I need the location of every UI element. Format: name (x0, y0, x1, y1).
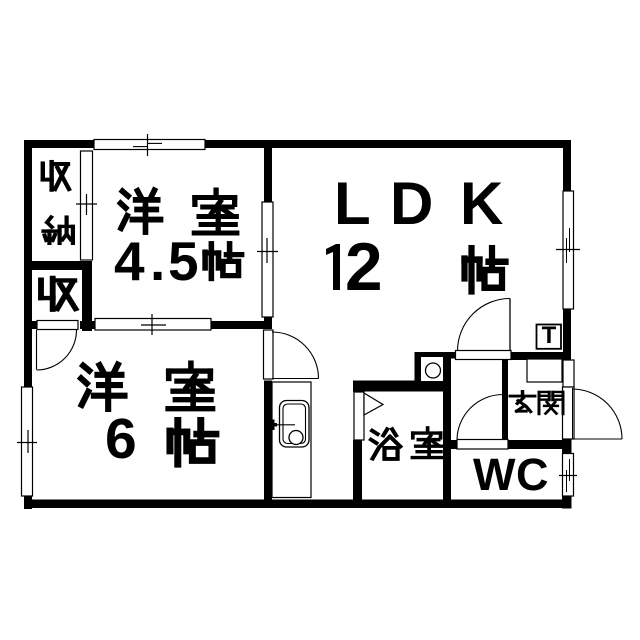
svg-text:W: W (473, 449, 516, 500)
svg-text:K: K (460, 170, 503, 237)
svg-text:6: 6 (105, 407, 137, 471)
svg-text:4: 4 (114, 230, 145, 292)
svg-text:2: 2 (345, 230, 383, 305)
svg-text:5: 5 (168, 230, 199, 292)
svg-text:D: D (390, 170, 433, 237)
svg-text:C: C (516, 449, 549, 500)
svg-text:L: L (334, 170, 371, 237)
svg-text:T: T (542, 322, 557, 349)
svg-text:.: . (150, 230, 165, 292)
